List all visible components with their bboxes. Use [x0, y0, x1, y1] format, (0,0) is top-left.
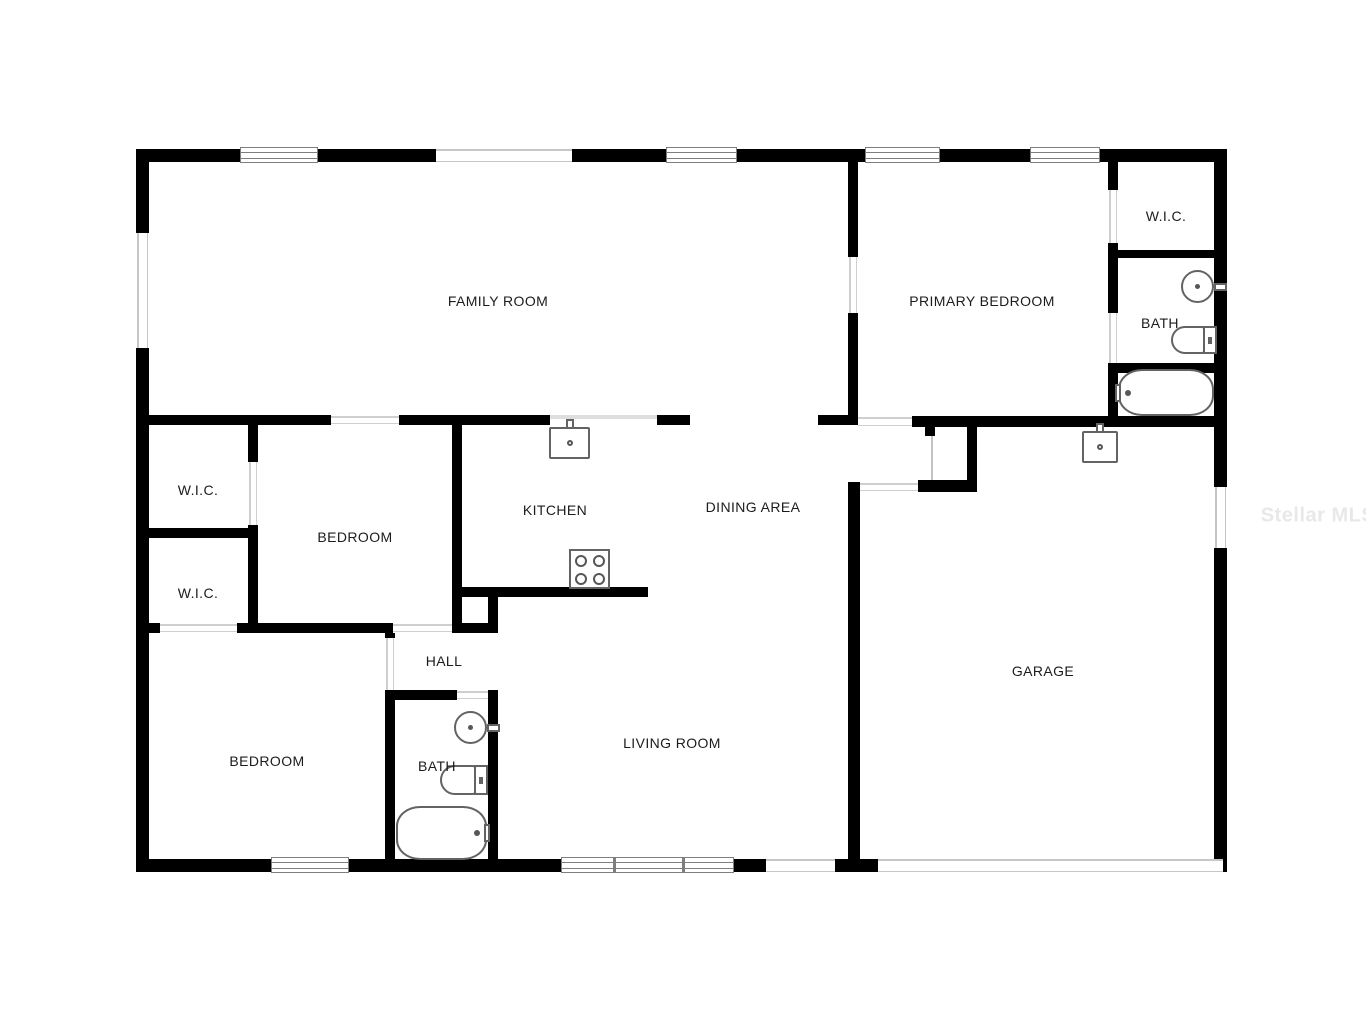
sink-drain	[1097, 444, 1103, 450]
stellar-mls-watermark: Stellar MLS	[1261, 505, 1366, 528]
sink-basin	[1082, 431, 1118, 463]
kitchen-stove-icon	[569, 549, 610, 589]
toilet-button	[1208, 337, 1212, 344]
wall-segment	[399, 415, 550, 425]
wall-segment	[572, 149, 666, 162]
wall-segment	[143, 528, 258, 538]
room-label-dining-area: DINING AREA	[706, 500, 801, 514]
room-label-bath-primary: BATH	[1141, 316, 1179, 330]
door-opening	[858, 416, 912, 427]
thin-line	[931, 436, 933, 480]
room-label-wic-upper: W.I.C.	[178, 483, 219, 497]
opening-edge-line	[137, 233, 139, 348]
room-label-primary-bedroom: PRIMARY BEDROOM	[909, 294, 1055, 308]
exterior-opening	[1215, 487, 1226, 548]
window-pane	[272, 862, 348, 869]
wall-segment	[1214, 548, 1227, 872]
room-label-bath-hall: BATH	[418, 759, 456, 773]
room-label-wic-primary: W.I.C.	[1146, 209, 1187, 223]
room-label-wic-lower: W.I.C.	[178, 586, 219, 600]
wall-segment	[395, 690, 457, 700]
wall-segment	[136, 149, 149, 233]
opening-edge-line	[766, 871, 835, 873]
wall-segment	[967, 426, 977, 482]
window-divider	[682, 857, 685, 873]
room-label-bedroom-lower: BEDROOM	[229, 754, 304, 768]
toilet-button	[479, 777, 483, 784]
wall-segment	[452, 425, 462, 633]
wall-segment	[925, 426, 935, 436]
room-label-family-room: FAMILY ROOM	[448, 294, 548, 308]
window-pane	[241, 152, 317, 159]
wall-segment	[848, 482, 860, 872]
tub-faucet	[1115, 384, 1121, 402]
primary-bath-sink-icon	[1181, 270, 1214, 303]
wall-segment	[848, 160, 858, 257]
wall-segment	[136, 348, 149, 872]
primary-bath-tub-icon	[1118, 369, 1214, 416]
wall-segment	[912, 416, 1227, 427]
wall-segment	[462, 587, 648, 597]
wall-segment	[143, 623, 160, 633]
faucet-icon	[1214, 283, 1227, 291]
exterior-opening	[436, 149, 572, 162]
room-label-living-room: LIVING ROOM	[623, 736, 721, 750]
wall-segment	[248, 425, 258, 462]
burner	[575, 573, 587, 585]
sink-drain	[1195, 284, 1200, 289]
wall-segment	[237, 623, 393, 633]
floor-plan: Stellar MLS FAMILY ROOMPRIMARY BEDROOMW.…	[0, 0, 1366, 1024]
kitchen-sink-icon	[549, 427, 590, 459]
stove-top	[569, 549, 610, 589]
exterior-opening	[766, 859, 835, 872]
opening-edge-line	[1225, 487, 1227, 548]
window	[1030, 147, 1100, 163]
wall-segment	[318, 149, 436, 162]
window-pane	[562, 862, 733, 869]
wall-segment	[848, 313, 858, 425]
opening-edge-line	[878, 871, 1223, 873]
sink-basin	[549, 427, 590, 459]
burner	[593, 573, 605, 585]
room-label-kitchen: KITCHEN	[523, 503, 587, 517]
window-divider	[613, 857, 616, 873]
room-label-garage: GARAGE	[1012, 664, 1074, 678]
toilet-tank	[474, 765, 488, 795]
sink-basin	[1181, 270, 1214, 303]
tub-body	[1118, 369, 1214, 416]
wall-segment	[1108, 160, 1118, 190]
wall-segment	[1214, 149, 1227, 487]
door-opening	[860, 482, 918, 492]
room-label-bedroom-middle: BEDROOM	[317, 530, 392, 544]
door-opening	[385, 638, 395, 690]
opening-edge-line	[147, 233, 149, 348]
window	[666, 147, 737, 163]
burner	[593, 555, 605, 567]
window-pane	[667, 152, 736, 159]
tub-faucet-dot	[1125, 390, 1131, 396]
door-opening	[160, 623, 237, 633]
room-label-hall: HALL	[426, 654, 463, 668]
burner	[575, 555, 587, 567]
tub-faucet	[484, 824, 490, 842]
wall-segment	[1108, 250, 1227, 258]
window	[561, 857, 734, 873]
door-opening	[1108, 313, 1118, 363]
sink-basin	[454, 711, 487, 744]
opening-edge-line	[878, 859, 1223, 861]
door-opening	[331, 415, 399, 425]
faucet-icon	[487, 724, 500, 732]
hall-bath-sink-icon	[454, 711, 487, 744]
window-pane	[866, 152, 939, 159]
door-opening	[248, 462, 258, 525]
wall-segment	[143, 415, 331, 425]
window	[240, 147, 318, 163]
door-opening	[1108, 190, 1118, 243]
wall-segment	[462, 623, 498, 633]
wall-segment	[734, 859, 766, 872]
window	[865, 147, 940, 163]
door-opening	[393, 623, 452, 633]
exterior-opening	[137, 233, 148, 348]
wall-segment	[737, 149, 865, 162]
wall-segment	[385, 690, 395, 860]
opening-edge-line	[1215, 487, 1217, 548]
door-opening	[848, 257, 858, 313]
wall-segment	[136, 149, 240, 162]
garage-sink-icon	[1082, 431, 1118, 463]
toilet-tank	[1203, 326, 1217, 354]
window-pane	[1031, 152, 1099, 159]
tub-faucet-dot	[474, 830, 480, 836]
hall-bath-tub-icon	[396, 806, 487, 860]
opening-edge-line	[766, 859, 835, 861]
window	[271, 857, 349, 873]
exterior-opening	[878, 859, 1223, 872]
wall-segment	[940, 149, 1030, 162]
wall-segment	[349, 859, 561, 872]
wall-segment	[1100, 149, 1227, 162]
wall-segment	[657, 415, 690, 425]
sink-drain	[567, 440, 573, 446]
sink-drain	[468, 725, 473, 730]
wall-segment	[136, 859, 271, 872]
door-opening	[457, 690, 488, 700]
opening-edge-line	[436, 149, 572, 151]
wall-segment	[248, 525, 258, 633]
wall-segment	[918, 480, 977, 492]
opening-edge-line	[436, 161, 572, 163]
